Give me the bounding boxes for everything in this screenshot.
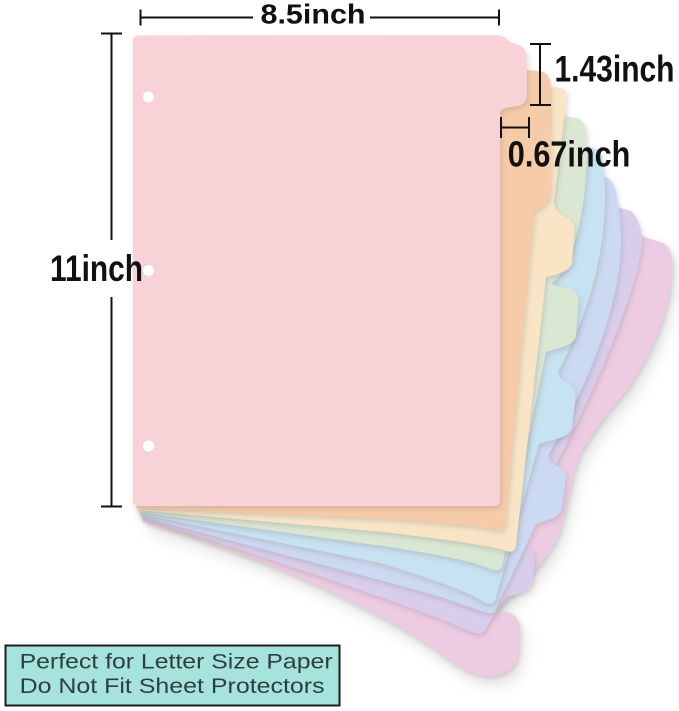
svg-text:Perfect for Letter Size Paper: Perfect for Letter Size Paper [20, 651, 333, 674]
svg-text:8.5inch: 8.5inch [261, 0, 366, 30]
svg-text:11inch: 11inch [50, 248, 143, 289]
svg-text:0.67inch: 0.67inch [508, 133, 631, 174]
svg-text:1.43inch: 1.43inch [555, 49, 675, 90]
svg-text:Do Not Fit Sheet Protectors: Do Not Fit Sheet Protectors [20, 675, 325, 698]
